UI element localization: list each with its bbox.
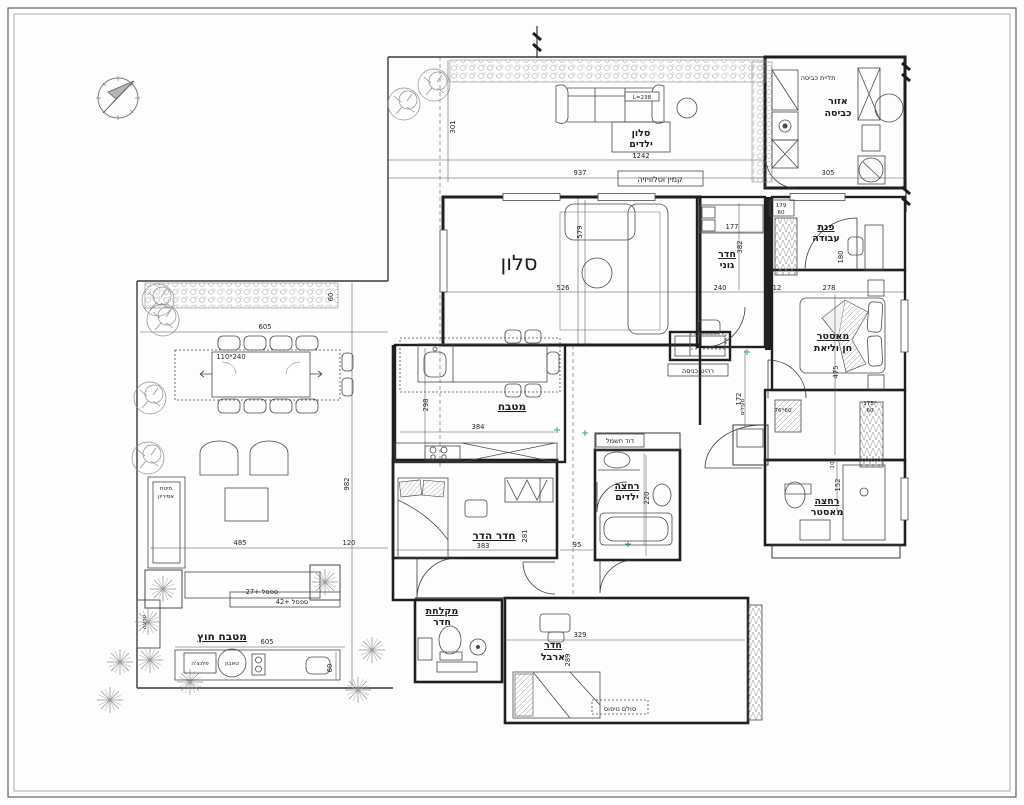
label-arbel-2: ארבל [541,652,565,663]
label-laundry-area-1: אזור [828,96,848,107]
kitchen-island [400,330,560,397]
dim-177: 177 [726,223,739,231]
floor-plan-svg: סלון ילדים L=238 קמין וטלוויזיה תליית כב… [0,0,1024,805]
living-sofa [560,204,668,334]
dim-605-bottom: 605 [261,638,274,646]
label-fireplace-tv: קמין וטלוויזיה [637,175,683,184]
dim-485: 485 [234,539,247,547]
arbel-room-furniture [513,614,600,718]
dim-383: 383 [477,542,490,550]
dim-579: 579 [576,226,584,239]
label-hadar-room: חדר הדר [472,530,515,542]
kids-lounge-sofa [556,85,664,123]
label-master-2: חן וליאת [814,343,852,354]
dim-179: 179 [776,203,787,209]
hadar-room-furniture [398,478,553,558]
dim-937: 937 [574,169,587,177]
dim-384: 384 [472,423,485,431]
label-outdoor-kitchen: מטבח חוץ [197,631,247,643]
dim-301: 301 [449,121,457,134]
dim-475: 475 [832,366,840,379]
label-goni-1: חדר [718,249,736,260]
label-kitchen: מטבח [498,401,526,413]
dim-278: 278 [823,284,836,292]
dim-120: 120 [343,539,356,547]
label-canopy-2: אפיריון [158,494,174,500]
shower-room-fixtures [418,626,486,672]
dim-180: 180 [837,251,845,264]
label-kids-bath-2: ילדים [615,492,639,503]
label-canopy-1: מיטת [160,486,173,492]
floor-plan-page: סלון ילדים L=238 קמין וטלוויזיה תליית כב… [0,0,1024,805]
label-flowerbed: ערוגה [142,615,148,629]
label-bench-27: ספסל +27 [246,588,278,596]
label-master-bath-1: רחצה [815,496,840,507]
dim-179b: 60 [777,210,785,216]
north-compass-icon [96,76,140,120]
label-shower-room-1: מקלחת [426,606,459,617]
dim-10: 10 [830,461,836,469]
label-sofa-length: L=238 [633,95,652,101]
label-shower-room-2: חדר [433,617,451,628]
dressing-wardrobes [737,400,883,467]
dim-982: 982 [343,478,351,491]
label-laundry-hang: תליית כביסה [801,74,836,82]
dim-60-bottom: 60 [326,664,334,673]
dim-110-240: 110*240 [216,353,245,361]
dim-329: 329 [574,631,587,639]
label-living-room: סלון [500,251,537,275]
dim-298: 298 [422,399,430,412]
label-arbel-1: חדר [544,640,562,651]
dim-281: 281 [521,530,529,543]
work-corner-desk [848,225,883,270]
label-tabun: טאבון [225,661,239,667]
dim-152: 152 [834,479,842,492]
outdoor-lounge [148,441,288,568]
dining-set [175,336,353,413]
goni-room-furniture [690,205,797,349]
dim-172: 172 [735,393,743,406]
label-kids-lounge-2: ילדים [629,139,653,150]
dim-1242: 1242 [632,152,649,160]
furniture [148,68,903,718]
dim-289: 289 [564,654,572,667]
dim-76-60: 76*60 [774,408,791,414]
dim-240: 240 [714,284,727,292]
dim-60-top: 60 [327,293,335,302]
label-work-1: פנת [817,222,834,233]
label-plancha: פלנצ'ה [191,660,209,667]
label-master-bath-2: מאסטר [811,507,844,518]
label-entry-furniture: רהיט כניסה [682,367,714,375]
dim-605-top: 605 [259,323,272,331]
laundry-fixtures [772,68,903,184]
dim-305: 305 [822,169,835,177]
section-markers [533,26,910,212]
label-kids-bath-1: רחצה [615,481,640,492]
dim-95: 95 [573,541,582,549]
label-bench-42: ספסל +42 [276,598,308,606]
label-boiler: דוד חשמל [606,437,635,445]
dim-382: 382 [736,241,744,254]
label-master-1: מאסטר [817,331,850,342]
dim-175: 175* [863,401,877,407]
label-goni-2: גוני [720,260,735,271]
label-climbing: סולם טיפוס [604,705,636,713]
label-laundry-area-2: כביסה [825,108,852,119]
label-work-2: עבודה [812,233,840,244]
dim-12: 12 [773,284,782,292]
dim-175b: 60 [866,408,874,414]
dimensions: 301 1242 937 305 579 526 177 382 179 60 … [216,121,877,673]
dim-220: 220 [643,492,651,505]
label-kids-lounge-1: סלון [632,128,651,139]
dim-526: 526 [557,284,570,292]
